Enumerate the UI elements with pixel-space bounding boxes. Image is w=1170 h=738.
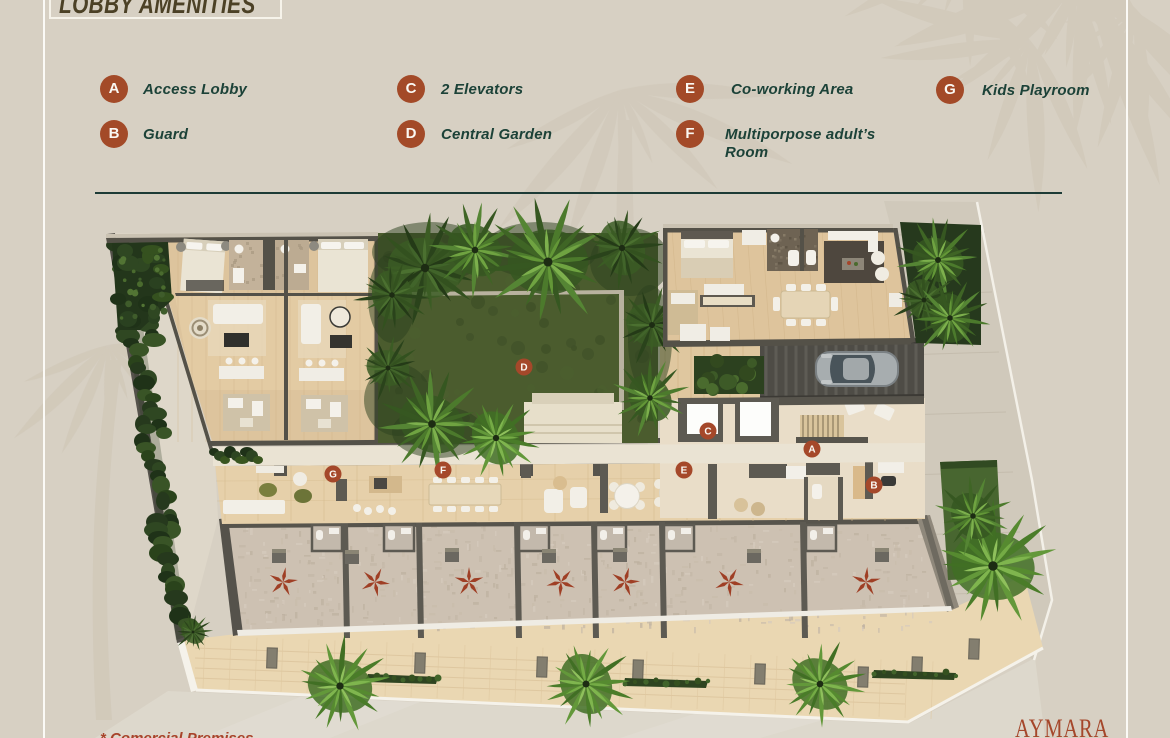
svg-text:G: G xyxy=(329,470,337,481)
svg-text:C: C xyxy=(704,427,711,438)
svg-text:D: D xyxy=(520,363,527,374)
svg-text:E: E xyxy=(681,466,688,477)
svg-text:A: A xyxy=(808,445,815,456)
svg-text:B: B xyxy=(870,481,877,492)
svg-text:F: F xyxy=(440,466,446,477)
